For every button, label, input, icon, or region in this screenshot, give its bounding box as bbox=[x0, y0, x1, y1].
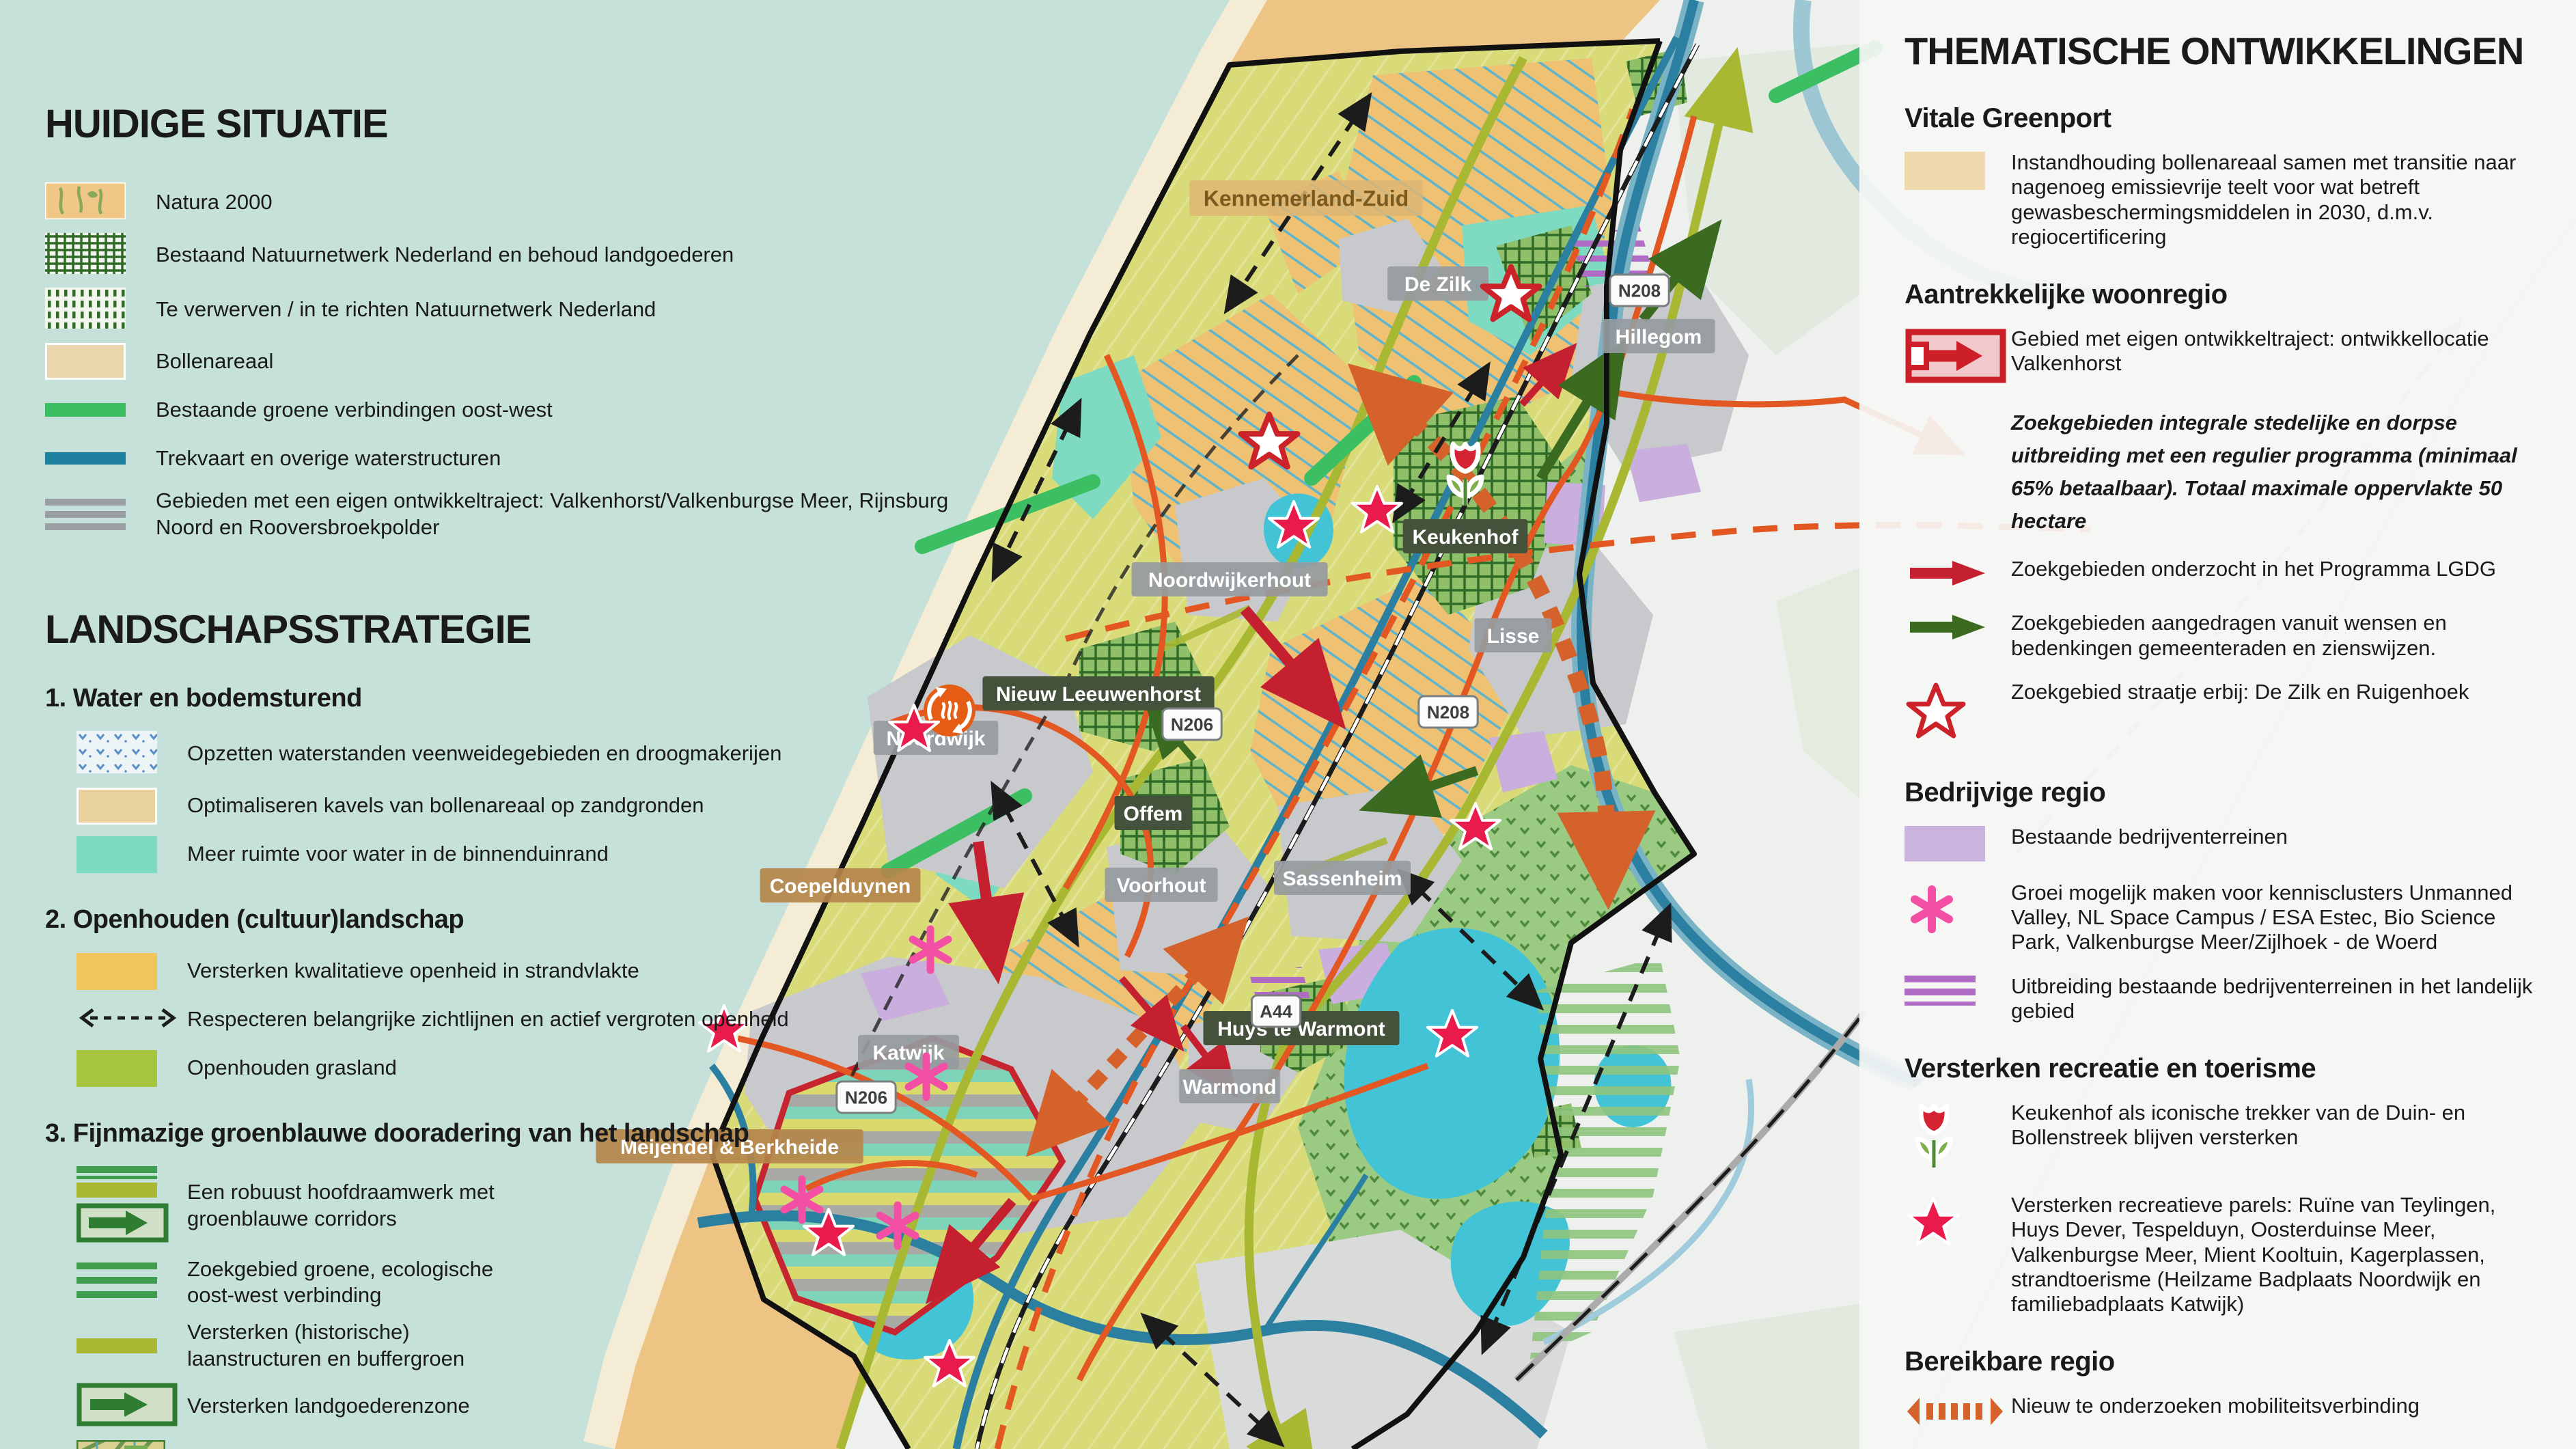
red-box-arrow-swatch bbox=[1905, 328, 2007, 387]
legend-swatch-cell bbox=[45, 403, 156, 417]
panel-group-heading: Vitale Greenport bbox=[1905, 103, 2549, 134]
legend-item-label: Respecteren belangrijke zichtlijnen en a… bbox=[187, 1006, 789, 1033]
panel-item-text: Nieuw te onderzoeken mobiliteitsverbindi… bbox=[2011, 1394, 2420, 1418]
map-label: N208 bbox=[1610, 275, 1669, 306]
panel-item: Zoekgebieden onderzocht in het Programma… bbox=[1905, 557, 2549, 592]
teal-swatch bbox=[77, 836, 157, 873]
panel-group: Bedrijvige regioBestaande bedrijventerre… bbox=[1905, 777, 2549, 1023]
panel-item-text: Instandhouding bollenareaal samen met tr… bbox=[2011, 150, 2549, 249]
legend-item-label: Bollenareaal bbox=[156, 348, 273, 375]
panel-item-text: Versterken recreatieve parels: Ruïne van… bbox=[2011, 1193, 2549, 1316]
panel-group: Bereikbare regioNieuw te onderzoeken mob… bbox=[1905, 1347, 2549, 1449]
legend-item: Versterken kwalitatieve openheid in stra… bbox=[45, 952, 1022, 991]
panel-item: Keukenhof als iconische trekker van de D… bbox=[1905, 1101, 2549, 1174]
legend-swatch-cell bbox=[77, 1004, 187, 1035]
legend-item: Respecteren belangrijke zichtlijnen en a… bbox=[45, 1001, 1022, 1039]
legend-item-label: Versterken landgoederenzone bbox=[187, 1393, 470, 1420]
panel-item: Zoekgebieden aangedragen vanuit wensen e… bbox=[1905, 611, 2549, 661]
panel-item-icon-cell bbox=[1905, 974, 2011, 1006]
strategy-map-page: Kennemerland-ZuidCoepelduynenMeijendel &… bbox=[0, 0, 2576, 1449]
thematic-panel-title: THEMATISCHE ONTWIKKELINGEN bbox=[1905, 29, 2549, 73]
legend-item: Bestaande groene verbindingen oost-west bbox=[45, 391, 1022, 429]
legend-swatch-cell bbox=[45, 182, 156, 223]
legend-swatch-cell bbox=[77, 953, 187, 990]
panel-item-text: Groei mogelijk maken voor kennisclusters… bbox=[2011, 881, 2549, 955]
legend-item-label: Gebieden met een eigen ontwikkeltraject:… bbox=[156, 488, 1003, 541]
svg-text:Warmond: Warmond bbox=[1182, 1076, 1276, 1099]
panel-item-icon-cell bbox=[1905, 881, 2011, 940]
svg-text:Sassenheim: Sassenheim bbox=[1282, 868, 1402, 890]
map-label: A44 bbox=[1251, 995, 1300, 1027]
panel-group: Vitale GreenportInstandhouding bollenare… bbox=[1905, 103, 2549, 249]
legend-item: Opzetten waterstanden veenweidegebieden … bbox=[45, 731, 1022, 777]
panel-item-icon-cell bbox=[1905, 1101, 2011, 1174]
legend-item: Meer ruimte voor water in de binnenduinr… bbox=[45, 836, 1022, 874]
legend-item-label: Opzetten waterstanden veenweidegebieden … bbox=[187, 741, 781, 767]
map-label: Offem bbox=[1115, 796, 1192, 830]
svg-text:Lisse: Lisse bbox=[1487, 625, 1540, 648]
legend-item: Versterken (historische) laanstructuren … bbox=[45, 1319, 1022, 1372]
red-star-swatch bbox=[1905, 1194, 1962, 1255]
panel-item-text: Zoekgebieden onderzocht in het Programma… bbox=[2011, 557, 2496, 581]
panel-item-text: Gebied met eigen ontwikkeltraject: ontwi… bbox=[2011, 327, 2549, 376]
panel-item-text: Zoekgebieden integrale stedelijke en dor… bbox=[2011, 406, 2549, 538]
sightline-swatch bbox=[77, 1004, 179, 1035]
map-label: N206 bbox=[1163, 708, 1221, 740]
estate-zone-swatch bbox=[77, 1383, 179, 1430]
grass-swatch bbox=[77, 1050, 157, 1087]
panel-item: Bestaande bedrijventerreinen bbox=[1905, 825, 2549, 861]
legend-item-label: Bestaand Natuurnetwerk Nederland en beho… bbox=[156, 242, 734, 268]
svg-text:Voorhout: Voorhout bbox=[1116, 874, 1206, 897]
gray-stripes-swatch bbox=[45, 499, 126, 530]
panel-item: Uitbreiding bestaande bedrijventerreinen… bbox=[1905, 974, 2549, 1024]
panel-item-icon-cell bbox=[1905, 1394, 2011, 1431]
legend-item: Bollenareaal bbox=[45, 342, 1022, 381]
map-label: Hillegom bbox=[1602, 319, 1715, 353]
blue-bar-swatch bbox=[45, 452, 126, 465]
legend-swatch-cell bbox=[77, 1440, 187, 1449]
legend-swatch-cell bbox=[45, 452, 156, 465]
framework-swatch bbox=[77, 1166, 179, 1246]
svg-text:De Zilk: De Zilk bbox=[1404, 273, 1472, 296]
tan-swatch-swatch bbox=[1905, 152, 1985, 190]
panel-item-text: Keukenhof als iconische trekker van de D… bbox=[2011, 1101, 2549, 1150]
sand-swatch bbox=[77, 788, 157, 825]
panel-item-text: Zoekgebied straatje erbij: De Zilk en Ru… bbox=[2011, 680, 2469, 704]
panel-group-heading: Bereikbare regio bbox=[1905, 1347, 2549, 1377]
panel-item: Instandhouding bollenareaal samen met tr… bbox=[1905, 150, 2549, 249]
landschapsstrategie-title: LANDSCHAPSSTRATEGIE bbox=[45, 607, 1022, 652]
green-arrow-swatch bbox=[1905, 612, 1993, 646]
purple-swatch-swatch bbox=[1905, 826, 1985, 861]
pink-asterisk-swatch bbox=[1905, 882, 1959, 940]
legend-item-label: Natura 2000 bbox=[156, 189, 273, 216]
panel-item-icon-cell bbox=[1905, 150, 2011, 190]
legend-swatch-cell bbox=[45, 288, 156, 332]
legend-item: Bestaand Natuurnetwerk Nederland en beho… bbox=[45, 233, 1022, 277]
legend-item-label: Trekvaart en overige waterstructuren bbox=[156, 445, 501, 472]
legend-item: Versterken landgoederenzone bbox=[45, 1383, 1022, 1430]
purple-stripes-swatch bbox=[1905, 976, 1976, 1006]
bollenareaal-swatch bbox=[45, 343, 126, 380]
legend-item-label: Versterken (historische) laanstructuren … bbox=[187, 1319, 508, 1372]
legend-item: Groenblauwe landschapskamers bbox=[45, 1440, 1022, 1449]
tulip-swatch bbox=[1905, 1102, 1963, 1174]
landschapsstrategie-sections: 1. Water en bodemsturendOpzetten waterst… bbox=[45, 684, 1022, 1449]
panel-item-icon-cell bbox=[1905, 1193, 2011, 1255]
map-label: Lisse bbox=[1475, 618, 1552, 652]
svg-text:N206: N206 bbox=[1171, 714, 1213, 734]
legend-swatch-cell bbox=[77, 836, 187, 873]
legend-item-label: Zoekgebied groene, ecologische oost-west… bbox=[187, 1256, 508, 1310]
strategy-section-heading: 3. Fijnmazige groenblauwe dooradering va… bbox=[45, 1119, 1022, 1148]
map-label: Voorhout bbox=[1105, 868, 1217, 902]
green-bar-swatch bbox=[45, 403, 126, 417]
nnn-grid-swatch bbox=[45, 233, 126, 277]
legend-item: Een robuust hoofdraamwerk met groenblauw… bbox=[45, 1166, 1022, 1246]
map-label: Kennemerland-Zuid bbox=[1189, 180, 1423, 216]
legend-item-label: Een robuust hoofdraamwerk met groenblauw… bbox=[187, 1179, 508, 1232]
svg-text:Nieuw Leeuwenhorst: Nieuw Leeuwenhorst bbox=[996, 683, 1201, 706]
red-arrow-swatch bbox=[1905, 558, 1993, 592]
legend-swatch-cell bbox=[45, 499, 156, 530]
legend-item: Optimaliseren kavels van bollenareaal op… bbox=[45, 787, 1022, 825]
svg-text:Keukenhof: Keukenhof bbox=[1412, 526, 1519, 549]
legend-item: Gebieden met een eigen ontwikkeltraject:… bbox=[45, 488, 1022, 541]
panel-group: Versterken recreatie en toerismeKeukenho… bbox=[1905, 1053, 2549, 1316]
water-dots-swatch bbox=[77, 731, 157, 777]
legend-item: Natura 2000 bbox=[45, 182, 1022, 223]
thematic-panel-groups: Vitale GreenportInstandhouding bollenare… bbox=[1905, 103, 2549, 1449]
panel-item-text: Bestaande bedrijventerreinen bbox=[2011, 825, 2288, 849]
strategy-section-heading: 1. Water en bodemsturend bbox=[45, 684, 1022, 713]
legend-swatch-cell bbox=[77, 1050, 187, 1087]
map-label: De Zilk bbox=[1387, 266, 1488, 301]
legend-swatch-cell bbox=[77, 1338, 187, 1353]
panel-item-icon-cell bbox=[1905, 557, 2011, 592]
legend-swatch-cell bbox=[77, 1166, 187, 1246]
legend-item-label: Te verwerven / in te richten Natuurnetwe… bbox=[156, 296, 656, 323]
panel-item-icon-cell bbox=[1905, 327, 2011, 387]
panel-item-icon-cell bbox=[1905, 680, 2011, 747]
huidige-situatie-items: Natura 2000Bestaand Natuurnetwerk Nederl… bbox=[45, 182, 1022, 541]
legend-swatch-cell bbox=[45, 233, 156, 277]
legend-item: Openhouden grasland bbox=[45, 1049, 1022, 1088]
panel-item-icon-cell bbox=[1905, 611, 2011, 646]
panel-item-text: Zoekgebieden aangedragen vanuit wensen e… bbox=[2011, 611, 2549, 661]
strategy-section: 3. Fijnmazige groenblauwe dooradering va… bbox=[45, 1119, 1022, 1449]
svg-text:Hillegom: Hillegom bbox=[1616, 326, 1702, 348]
strategy-section: 2. Openhouden (cultuur)landschapVersterk… bbox=[45, 905, 1022, 1088]
olive-bar-swatch bbox=[77, 1338, 157, 1353]
panel-item-icon-cell bbox=[1905, 406, 2011, 408]
svg-text:A44: A44 bbox=[1260, 1001, 1292, 1021]
natura2000-swatch bbox=[45, 182, 126, 223]
legend-item: Te verwerven / in te richten Natuurnetwe… bbox=[45, 288, 1022, 332]
white-star-swatch bbox=[1905, 681, 1967, 747]
legend-item-label: Bestaande groene verbindingen oost-west bbox=[156, 397, 553, 424]
panel-item-text: Uitbreiding bestaande bedrijventerreinen… bbox=[2011, 974, 2549, 1024]
thematic-panel: THEMATISCHE ONTWIKKELINGEN Vitale Greenp… bbox=[1859, 0, 2576, 1449]
legend-item: Zoekgebied groene, ecologische oost-west… bbox=[45, 1256, 1022, 1310]
legend-swatch-cell bbox=[77, 1262, 187, 1302]
nnn-dashed-swatch bbox=[45, 288, 126, 332]
panel-item: Nieuw te onderzoeken mobiliteitsverbindi… bbox=[1905, 1394, 2549, 1431]
panel-item: Groei mogelijk maken voor kennisclusters… bbox=[1905, 881, 2549, 955]
svg-text:N208: N208 bbox=[1427, 702, 1469, 722]
green-stripes-swatch bbox=[77, 1262, 157, 1302]
panel-item: Versterken recreatieve parels: Ruïne van… bbox=[1905, 1193, 2549, 1316]
huidige-situatie-title: HUIDIGE SITUATIE bbox=[45, 101, 1022, 147]
panel-item: Gebied met eigen ontwikkeltraject: ontwi… bbox=[1905, 327, 2549, 387]
strategy-section-heading: 2. Openhouden (cultuur)landschap bbox=[45, 905, 1022, 935]
legend-item-label: Openhouden grasland bbox=[187, 1055, 397, 1081]
svg-text:Kennemerland-Zuid: Kennemerland-Zuid bbox=[1204, 187, 1409, 211]
panel-group-heading: Aantrekkelijke woonregio bbox=[1905, 279, 2549, 310]
panel-group: Aantrekkelijke woonregioGebied met eigen… bbox=[1905, 279, 2549, 747]
svg-text:N208: N208 bbox=[1618, 280, 1661, 301]
panel-group-heading: Bedrijvige regio bbox=[1905, 777, 2549, 808]
legend-swatch-cell bbox=[45, 343, 156, 380]
legend-swatch-cell bbox=[77, 788, 187, 825]
svg-text:Offem: Offem bbox=[1124, 803, 1183, 825]
legend-swatch-cell bbox=[77, 731, 187, 777]
legend-item-label: Versterken kwalitatieve openheid in stra… bbox=[187, 958, 639, 984]
panel-item: Zoekgebieden integrale stedelijke en dor… bbox=[1905, 406, 2549, 538]
chevron-swatch bbox=[1905, 1395, 2014, 1431]
svg-text:Noordwijkerhout: Noordwijkerhout bbox=[1148, 569, 1311, 592]
map-label: N208 bbox=[1419, 696, 1478, 728]
amber-swatch bbox=[77, 953, 157, 990]
legend-swatch-cell bbox=[77, 1383, 187, 1430]
landscape-rooms-swatch bbox=[77, 1440, 165, 1449]
legend-panel: HUIDIGE SITUATIE Natura 2000Bestaand Nat… bbox=[45, 101, 1022, 1449]
legend-item-label: Meer ruimte voor water in de binnenduinr… bbox=[187, 841, 609, 868]
panel-item-icon-cell bbox=[1905, 825, 2011, 861]
map-label: Sassenheim bbox=[1274, 861, 1411, 895]
panel-group-heading: Versterken recreatie en toerisme bbox=[1905, 1053, 2549, 1084]
strategy-section: 1. Water en bodemsturendOpzetten waterst… bbox=[45, 684, 1022, 874]
map-label: Keukenhof bbox=[1403, 519, 1528, 553]
map-label: Warmond bbox=[1179, 1069, 1280, 1103]
map-label: Noordwijkerhout bbox=[1132, 562, 1328, 596]
panel-item: Zoekgebied straatje erbij: De Zilk en Ru… bbox=[1905, 680, 2549, 747]
legend-item: Trekvaart en overige waterstructuren bbox=[45, 439, 1022, 478]
legend-item-label: Optimaliseren kavels van bollenareaal op… bbox=[187, 792, 704, 819]
